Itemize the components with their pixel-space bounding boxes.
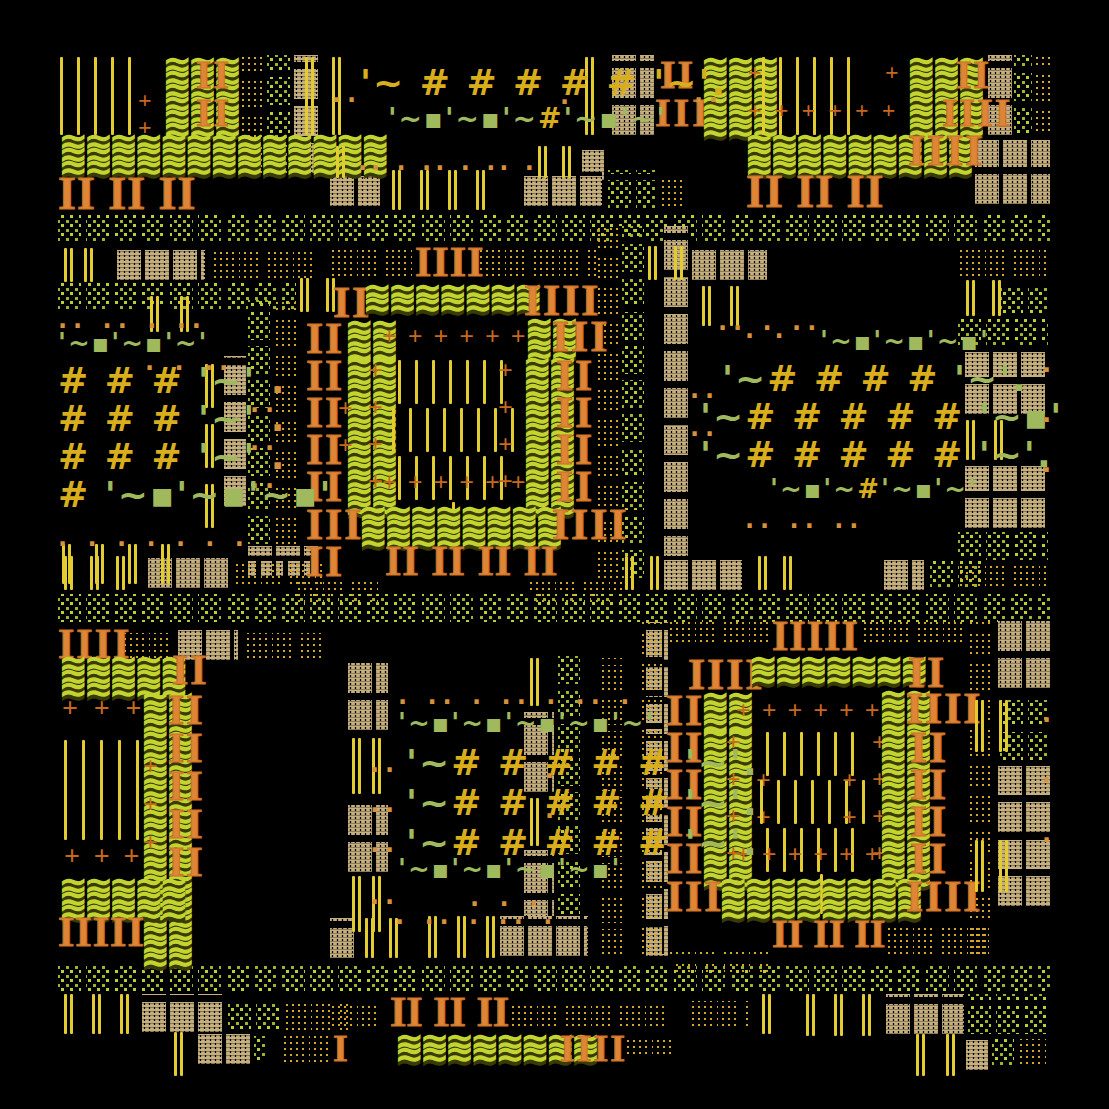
ibeam-motif: II II II (58, 174, 196, 214)
lime-dots-field (58, 958, 1050, 992)
glyph-text-line: '~# # # # # '~'. (406, 742, 759, 783)
lime-dots-field (958, 532, 1048, 560)
gold-dots-field (282, 1034, 332, 1062)
gold-dots-field (330, 998, 385, 1030)
glyph-text-line: '~# # # # # '~▪' (700, 396, 1063, 437)
bars-motif (64, 556, 150, 590)
glyph-text-line: '~# # # # '~'. (722, 358, 1028, 399)
bars-motif (966, 280, 1026, 316)
dot-row: .. (694, 80, 724, 108)
dot-row: . . (745, 316, 790, 344)
dot-row: .. (370, 790, 400, 818)
lime-dots-field (58, 212, 1050, 242)
dot-row: .. (370, 750, 400, 778)
ascii-art-canvas: ++++++≈≈≈≈≈≈≈≈≈≈≈≈≈≈≈≈≈≈IIII≈≈≈≈≈≈≈≈≈≈≈≈… (0, 0, 1109, 1109)
bars-motif (762, 994, 790, 1034)
tick-text-line: '~▪'~▪'~#'~▪'~' (388, 102, 667, 135)
glyph-text-line: '~# # # # # '~'. (700, 434, 1053, 475)
bars-motif (538, 146, 594, 178)
glyph-text-line: '~# # # # # '~'. (406, 782, 759, 823)
dot-row: . (1042, 700, 1057, 728)
bars-motif (625, 556, 683, 590)
tick-text-line: '~▪'~▪'~▪'~▪' (398, 854, 621, 884)
dot-row: . . . . . . . (58, 524, 250, 552)
gold-dots-field (245, 630, 325, 660)
lime-dots-field (254, 1036, 266, 1062)
ibeam-motif: II (168, 806, 205, 843)
ibeam-motif: IIII (552, 506, 629, 545)
ibeam-motif: II II II (772, 916, 885, 951)
glyph-text-line: '~ # # # # # '~'. (360, 62, 727, 103)
plus-motif: ++ (842, 768, 868, 842)
lime-dots-field (968, 994, 1048, 1034)
dot-row: .. (332, 80, 362, 108)
glyph-text-line: # '~▪'~▪'~▪' (58, 474, 332, 515)
ibeam-motif: IIII (560, 1032, 627, 1065)
bars-motif (760, 780, 887, 824)
tan-brick-field (998, 620, 1050, 688)
ibeam-motif: II (168, 730, 205, 767)
gold-dots-field (1034, 55, 1050, 135)
bars-motif (174, 1032, 202, 1076)
tan-brick-field (198, 1034, 250, 1064)
tick-text-line: '~▪'~▪'~▪'~▪'~' (398, 708, 655, 738)
tan-brick-field (975, 140, 1050, 204)
ibeam-motif: II (956, 57, 991, 92)
gold-dots-field (690, 998, 750, 1028)
dot-row: . (545, 796, 560, 824)
dot-row: .. .. .. (745, 506, 864, 534)
ibeam-motif: II (168, 768, 205, 805)
ibeam-motif: IIIII (58, 914, 145, 951)
ibeam-motif: II II II II (385, 543, 558, 580)
ibeam-motif: II (168, 692, 205, 729)
bars-motif (806, 994, 898, 1036)
gold-dots-field (212, 250, 315, 278)
bars-motif (916, 1034, 984, 1076)
tan-brick-field (348, 658, 388, 730)
ibeam-motif: IIII (908, 132, 985, 171)
bars-motif (975, 840, 1031, 892)
plus-motif: ++++++ (736, 698, 890, 732)
lime-dots-field (58, 590, 1050, 622)
bars-motif (975, 700, 1031, 752)
plus-motif: ++ (338, 396, 364, 470)
dot-row: . .. . .. . .. . (398, 682, 635, 710)
dot-row: . (1042, 450, 1057, 478)
tick-text-line: '~▪'~#'~▪'~' (770, 474, 978, 504)
dot-row: .. . .. . .. . (358, 148, 538, 176)
dot-row: .. (370, 830, 400, 858)
dot-row: . (545, 756, 560, 784)
tick-text-line: '~▪'~▪'~▪' (820, 326, 990, 356)
bars-motif (64, 994, 156, 1034)
bars-motif (392, 170, 512, 210)
dot-row: . (1042, 760, 1057, 788)
tan-brick-field (884, 556, 924, 590)
lime-dots-field (608, 170, 656, 208)
ibeam-motif: IIII (906, 878, 983, 917)
dot-row: . (1042, 350, 1057, 378)
plus-motif: ++++++ (382, 324, 536, 358)
dot-row: . (1042, 400, 1057, 428)
gold-dots-field (660, 172, 684, 206)
dot-row: . (1042, 820, 1057, 848)
tan-brick-field (117, 250, 205, 280)
ibeam-motif: II (306, 543, 344, 582)
lime-dots-field (228, 996, 280, 1030)
gold-dots-field (958, 248, 1048, 276)
gold-dots-field (1018, 1036, 1046, 1066)
lime-dots-field (1014, 55, 1032, 135)
ibeam-motif: II (196, 57, 231, 92)
bars-motif (64, 248, 112, 282)
dot-row: . .. . .. . (395, 902, 558, 930)
ibeam-motif: I (333, 1032, 350, 1065)
bars-motif (64, 740, 162, 840)
lime-dots-field (992, 1036, 1014, 1066)
bars-motif (648, 246, 708, 280)
gold-dots-field (625, 1038, 675, 1054)
ibeam-motif: II II II (746, 172, 884, 212)
bars-motif (758, 556, 816, 590)
lime-dots-field (930, 558, 985, 588)
